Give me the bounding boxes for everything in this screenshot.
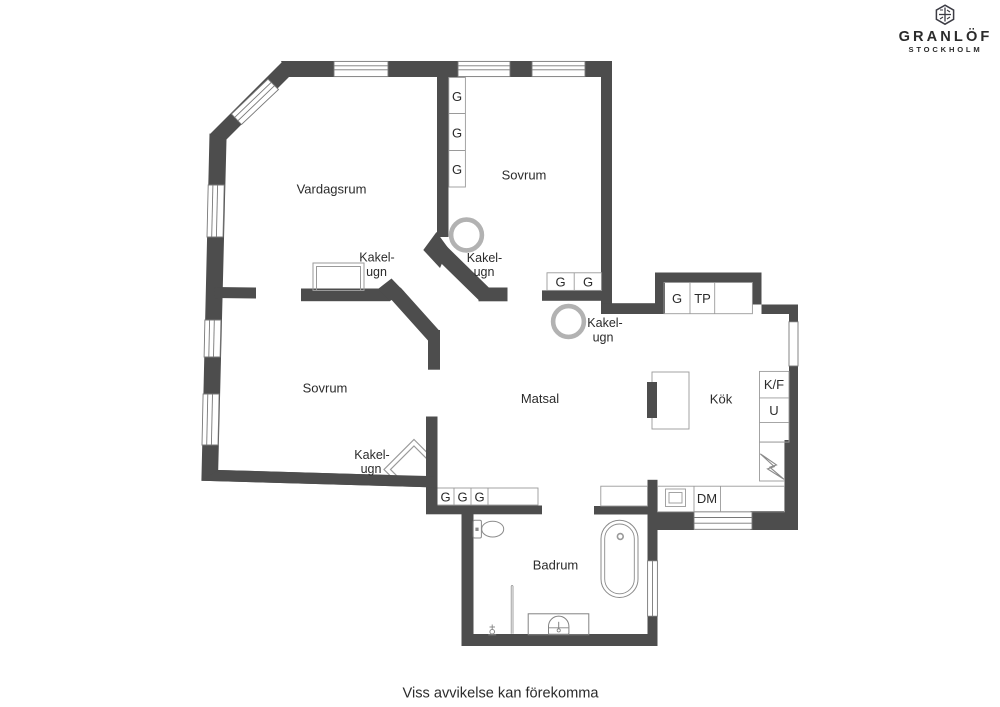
svg-text:Kakel-: Kakel- bbox=[354, 448, 389, 462]
svg-text:U: U bbox=[769, 403, 778, 418]
svg-text:ugn: ugn bbox=[361, 462, 382, 476]
svg-text:G: G bbox=[452, 126, 462, 141]
svg-text:GRANLÖF: GRANLÖF bbox=[899, 28, 993, 45]
svg-text:Sovrum: Sovrum bbox=[303, 381, 348, 396]
svg-text:G: G bbox=[440, 490, 450, 505]
svg-text:G: G bbox=[672, 291, 682, 306]
svg-text:G: G bbox=[452, 162, 462, 177]
svg-text:G: G bbox=[555, 275, 565, 290]
svg-text:G: G bbox=[583, 275, 593, 290]
svg-text:Viss avvikelse kan förekomma: Viss avvikelse kan förekomma bbox=[402, 686, 599, 702]
svg-text:Sovrum: Sovrum bbox=[502, 168, 547, 183]
svg-text:Badrum: Badrum bbox=[533, 558, 579, 573]
svg-text:STOCKHOLM: STOCKHOLM bbox=[909, 45, 983, 54]
svg-text:DM: DM bbox=[697, 491, 717, 506]
svg-text:ugn: ugn bbox=[366, 265, 387, 279]
svg-text:Kakel-: Kakel- bbox=[467, 251, 502, 265]
svg-text:K/F: K/F bbox=[764, 377, 784, 392]
svg-text:ugn: ugn bbox=[593, 331, 614, 345]
svg-text:G: G bbox=[457, 490, 467, 505]
svg-text:Vardagsrum: Vardagsrum bbox=[297, 182, 367, 197]
svg-text:Matsal: Matsal bbox=[521, 391, 559, 406]
svg-text:Kakel-: Kakel- bbox=[359, 251, 394, 265]
svg-text:G: G bbox=[474, 490, 484, 505]
svg-text:G: G bbox=[452, 89, 462, 104]
svg-text:ugn: ugn bbox=[474, 265, 495, 279]
svg-text:TP: TP bbox=[694, 291, 711, 306]
svg-text:Kakel-: Kakel- bbox=[587, 316, 622, 330]
svg-text:Kök: Kök bbox=[710, 392, 733, 407]
